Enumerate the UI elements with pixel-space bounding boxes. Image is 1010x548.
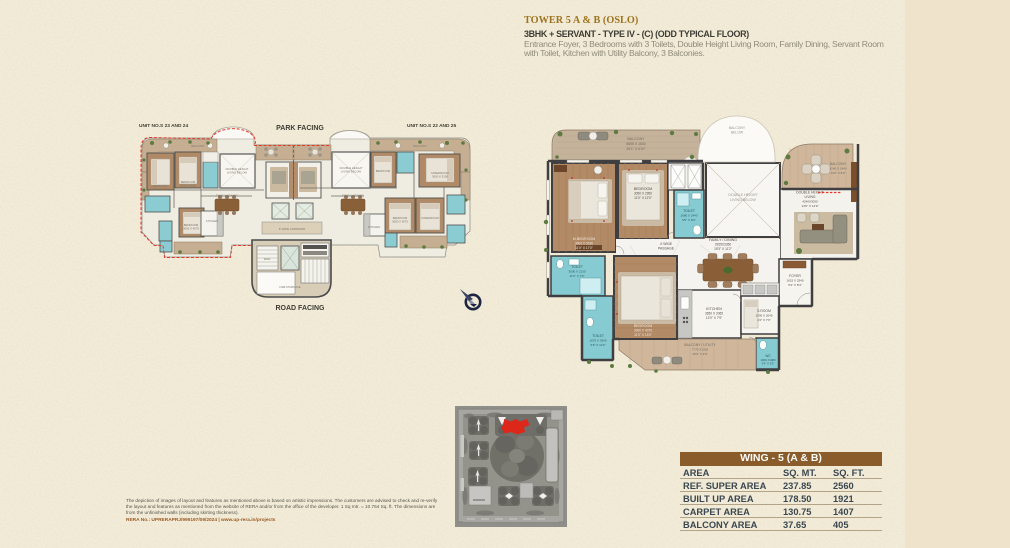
svg-text:BALCONY / UTILITY: BALCONY / UTILITY	[684, 343, 716, 347]
svg-text:BALCONY: BALCONY	[191, 144, 205, 148]
svg-text:11'0" X 12'0": 11'0" X 12'0"	[634, 196, 652, 200]
svg-text:BELOW: BELOW	[731, 131, 744, 135]
svg-text:TOILET: TOILET	[592, 334, 604, 338]
svg-text:4240X3050: 4240X3050	[802, 200, 818, 204]
svg-text:DOUBLE HEIGHT: DOUBLE HEIGHT	[728, 193, 758, 197]
svg-text:11'0" X 7'0": 11'0" X 7'0"	[569, 274, 584, 278]
svg-text:3050 X 2950: 3050 X 2950	[152, 188, 168, 192]
svg-text:3050 X 2950: 3050 X 2950	[634, 192, 652, 196]
svg-text:1675 X 3340: 1675 X 3340	[589, 339, 606, 343]
svg-text:3'4" X 3'3": 3'4" X 3'3"	[762, 362, 775, 366]
svg-text:3000 X 5190: 3000 X 5190	[575, 242, 593, 246]
svg-text:BEDROOM: BEDROOM	[634, 324, 653, 328]
svg-text:UNIT NO.S 23 AND 24: UNIT NO.S 23 AND 24	[139, 123, 188, 129]
svg-text:12'0" X 7'9": 12'0" X 7'9"	[706, 316, 722, 320]
svg-text:4240 X 2440: 4240 X 2440	[829, 167, 846, 171]
svg-text:FAMILY / DINING: FAMILY / DINING	[216, 194, 238, 198]
svg-text:5'6" X 11'0": 5'6" X 11'0"	[590, 343, 605, 347]
svg-text:UNIT NO.S 22 AND 25: UNIT NO.S 22 AND 25	[407, 123, 456, 129]
svg-text:11'0" X 17'0": 11'0" X 17'0"	[575, 246, 593, 250]
svg-text:4'4" X 7'9": 4'4" X 7'9"	[757, 318, 771, 322]
svg-text:BEDROOM: BEDROOM	[376, 169, 391, 173]
svg-text:FOYER: FOYER	[789, 274, 801, 278]
svg-text:2925X3350: 2925X3350	[715, 243, 732, 247]
svg-text:TOILET: TOILET	[571, 265, 583, 269]
svg-text:FIRE STAIRCASE: FIRE STAIRCASE	[279, 285, 300, 289]
svg-text:14'0" X 12'9": 14'0" X 12'9"	[802, 204, 819, 208]
svg-text:8555 X 1800: 8555 X 1800	[626, 142, 645, 146]
svg-text:14'0" X 8'0": 14'0" X 8'0"	[830, 171, 845, 175]
svg-text:TOILET: TOILET	[683, 209, 695, 213]
svg-text:M.BEDROOM: M.BEDROOM	[421, 216, 439, 220]
svg-text:5'5" X 8'0": 5'5" X 8'0"	[682, 218, 696, 222]
svg-text:11'0" X 13'0": 11'0" X 13'0"	[634, 333, 652, 337]
svg-text:LIVING BELOW: LIVING BELOW	[227, 171, 247, 175]
svg-text:PASSAGE: PASSAGE	[658, 247, 675, 251]
svg-text:4' WIDE: 4' WIDE	[660, 242, 673, 246]
svg-text:BALCONY: BALCONY	[830, 162, 847, 166]
svg-text:19'3" X 11'2": 19'3" X 11'2"	[714, 247, 732, 251]
svg-text:MAIN: MAIN	[264, 257, 271, 261]
svg-text:ROAD FACING: ROAD FACING	[276, 305, 326, 312]
svg-text:3050 X 2950: 3050 X 2950	[180, 184, 196, 188]
svg-text:26'1" X 5'10": 26'1" X 5'10"	[626, 147, 646, 151]
svg-text:LIVING BELOW: LIVING BELOW	[341, 170, 361, 174]
svg-text:3000 X 4075: 3000 X 4075	[634, 329, 652, 333]
svg-text:7775 X1000: 7775 X1000	[692, 348, 709, 352]
svg-text:FAMILY / DINING: FAMILY / DINING	[342, 194, 364, 198]
svg-text:KITCHEN: KITCHEN	[368, 225, 380, 229]
svg-text:S.ROOM: S.ROOM	[757, 309, 771, 313]
svg-text:3000 X 4075: 3000 X 4075	[183, 227, 199, 231]
svg-text:8' WIDE CORRIDOR: 8' WIDE CORRIDOR	[279, 227, 305, 231]
svg-text:25'6" X 3'0": 25'6" X 3'0"	[692, 352, 707, 356]
svg-text:FAMILY / DINING: FAMILY / DINING	[709, 238, 737, 242]
svg-text:PARK FACING: PARK FACING	[276, 125, 324, 132]
svg-text:1680 X 2440: 1680 X 2440	[680, 214, 697, 218]
svg-text:BALCONY: BALCONY	[413, 144, 427, 148]
svg-text:KITCHEN: KITCHEN	[706, 307, 722, 311]
svg-text:1615 X 2540: 1615 X 2540	[786, 279, 803, 283]
svg-text:BALCONY: BALCONY	[627, 137, 645, 141]
svg-text:3000 X 2130: 3000 X 2130	[568, 270, 585, 274]
svg-text:3000 X 5190: 3000 X 5190	[432, 175, 448, 179]
svg-text:M.BEDROOM: M.BEDROOM	[573, 237, 596, 241]
svg-text:5'4" X 8'4": 5'4" X 8'4"	[788, 283, 802, 287]
svg-text:3650 X 2065: 3650 X 2065	[705, 312, 723, 316]
svg-text:3000 X 4075: 3000 X 4075	[392, 220, 408, 224]
svg-text:BALCONY: BALCONY	[729, 126, 746, 130]
svg-text:LIVING BELOW: LIVING BELOW	[730, 198, 756, 202]
svg-text:LIVING: LIVING	[804, 195, 815, 199]
svg-text:KITCHEN: KITCHEN	[206, 219, 218, 223]
svg-text:BEDROOM: BEDROOM	[634, 187, 653, 191]
svg-text:1930 X 2045: 1930 X 2045	[755, 314, 772, 318]
